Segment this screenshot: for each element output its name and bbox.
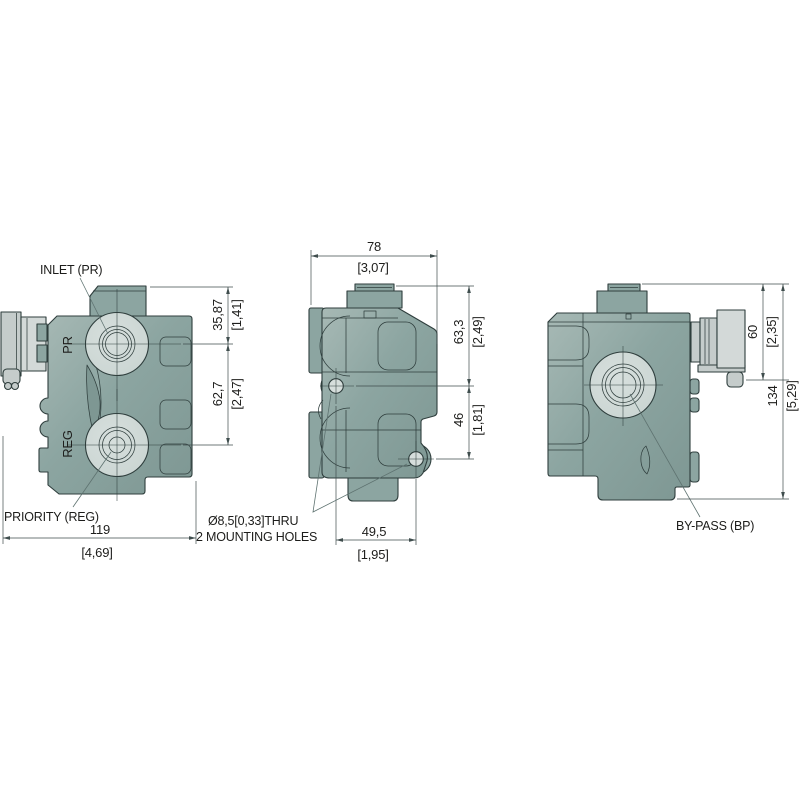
- dim-holes-mm: 49,5: [362, 524, 387, 539]
- dim-upper-mm: 63,3: [451, 320, 466, 345]
- top-cap: [347, 291, 402, 308]
- edge-tab: [690, 452, 699, 482]
- dim-overall-mm: 134: [765, 385, 780, 406]
- bypass-label: BY-PASS (BP): [676, 519, 754, 533]
- edge-tab: [690, 398, 699, 412]
- dim-holes-in: [1,95]: [357, 547, 388, 562]
- connector-plate: [1, 312, 21, 376]
- connector-tab: [37, 345, 47, 362]
- top-cap: [597, 291, 647, 313]
- right-side-view: BY-PASS (BP) 60 [2,35] 134 [5,29]: [548, 284, 799, 533]
- right-connector: [691, 310, 745, 387]
- dim-overall-in: [5,29]: [784, 380, 799, 411]
- reg-port-label: REG: [60, 430, 75, 458]
- edge-tab: [690, 379, 699, 394]
- connector-nub: [727, 372, 743, 387]
- pr-port-label: PR: [60, 336, 75, 354]
- dim-spacing-in: [2,47]: [229, 378, 244, 409]
- note-holes-line2: 2 MOUNTING HOLES: [196, 530, 317, 544]
- nut-lobe: [5, 383, 12, 390]
- nut-lobe: [12, 383, 19, 390]
- technical-drawing-page: PR REG INLET (PR) PRIORITY (REG) 35,87 […: [0, 0, 800, 800]
- dim-body-width-in: [3,07]: [357, 260, 388, 275]
- dimension-hole-lower: 46 [1,81]: [436, 386, 485, 459]
- valve-drawing: PR REG INLET (PR) PRIORITY (REG) 35,87 […: [0, 0, 800, 800]
- priority-label: PRIORITY (REG): [4, 510, 99, 524]
- connector-cap: [717, 310, 745, 368]
- dim-width-in: [4,69]: [81, 545, 112, 560]
- dim-body-width-mm: 78: [367, 239, 381, 254]
- left-connector: [1, 312, 47, 390]
- dim-lower-mm: 46: [451, 413, 466, 427]
- dim-width-mm: 119: [90, 522, 110, 537]
- connector-collar: [691, 322, 700, 362]
- dim-inlet-in: [1,41]: [229, 299, 244, 330]
- dim-inlet-mm: 35,87: [210, 299, 225, 331]
- note-holes-line1: Ø8,5[0,33]THRU: [208, 514, 298, 528]
- dim-lower-in: [1,81]: [470, 404, 485, 435]
- connector-block: [700, 318, 717, 365]
- top-cap: [90, 286, 146, 316]
- dim-spacing-mm: 62,7: [210, 382, 225, 407]
- connector-tab: [37, 324, 47, 341]
- connector-nut: [3, 369, 20, 384]
- inlet-label: INLET (PR): [40, 263, 102, 277]
- dim-connector-in: [2,35]: [764, 316, 779, 347]
- dim-connector-mm: 60: [745, 325, 760, 339]
- dim-upper-in: [2,49]: [470, 316, 485, 347]
